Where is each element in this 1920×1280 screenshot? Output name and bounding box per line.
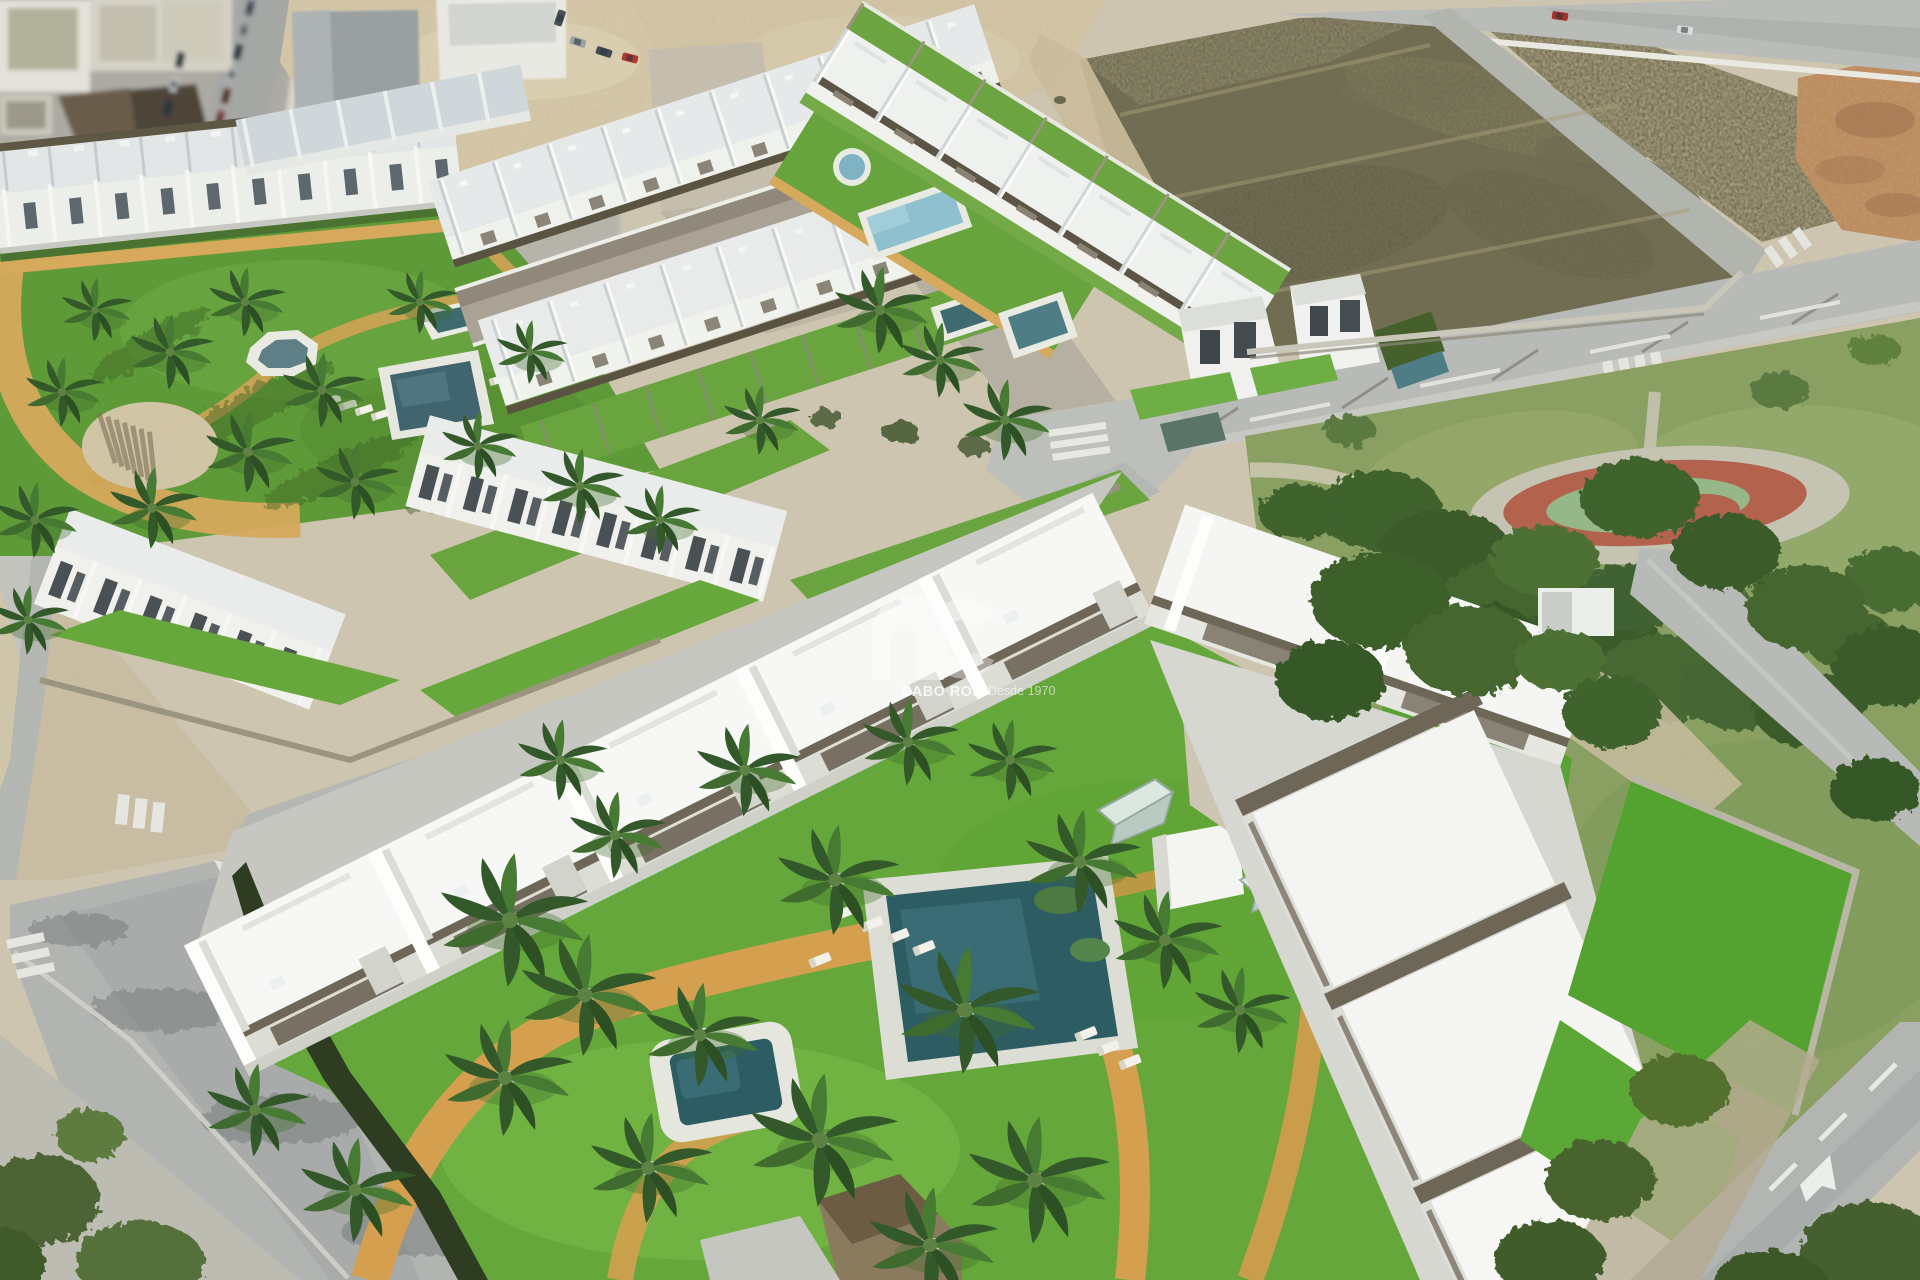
svg-text:CABO ROIG: CABO ROIG bbox=[901, 684, 988, 700]
svg-text:Desde 1970: Desde 1970 bbox=[988, 684, 1055, 698]
